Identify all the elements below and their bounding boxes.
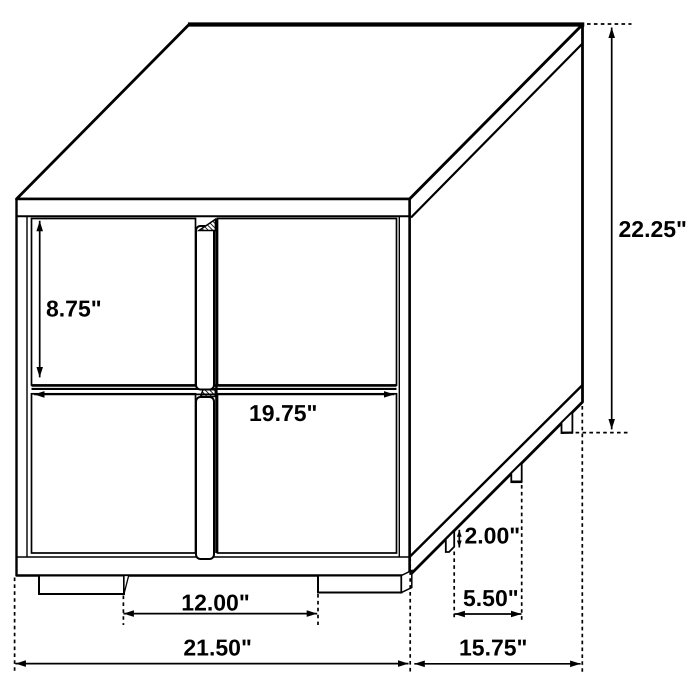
svg-text:15.75": 15.75": [459, 635, 527, 661]
svg-text:8.75": 8.75": [46, 296, 102, 322]
svg-text:5.50": 5.50": [463, 585, 519, 611]
svg-text:22.25": 22.25": [619, 216, 687, 242]
svg-text:12.00": 12.00": [181, 589, 249, 615]
svg-text:21.50": 21.50": [183, 635, 251, 661]
svg-text:2.00": 2.00": [465, 523, 521, 549]
svg-text:19.75": 19.75": [249, 400, 317, 426]
